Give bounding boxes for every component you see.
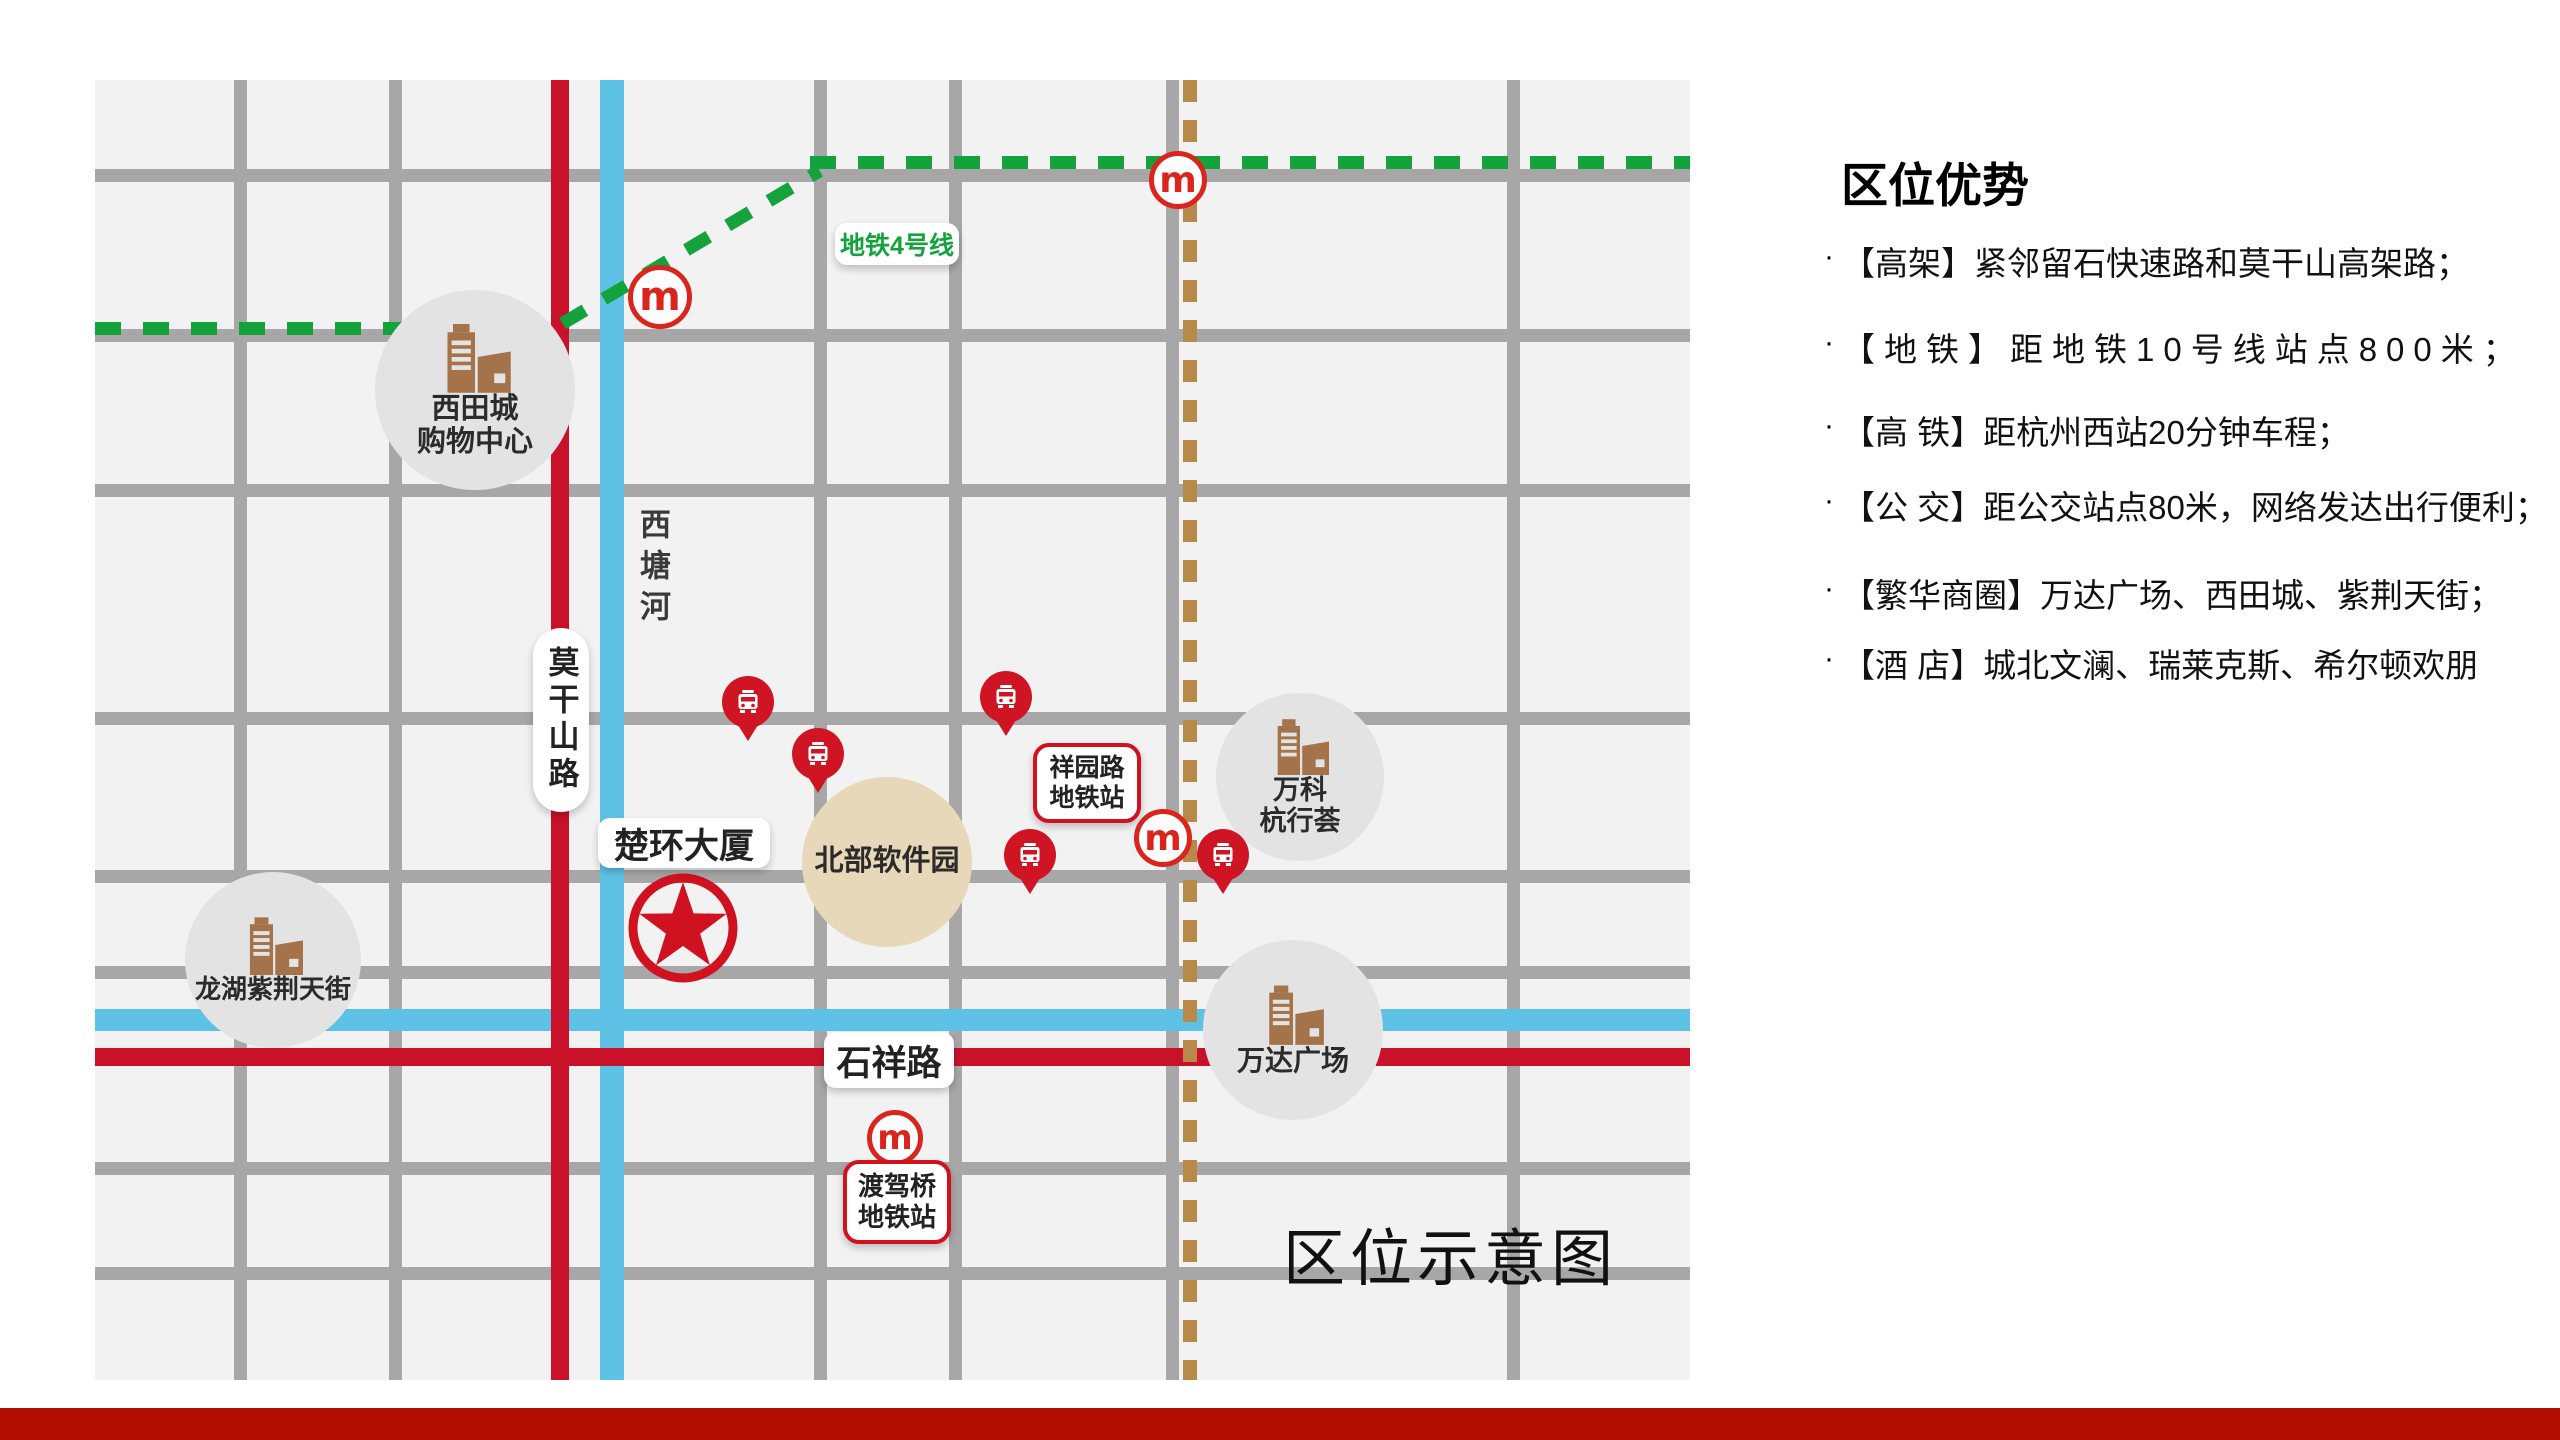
bullet-dot: · [1824, 481, 1834, 522]
river-xitang-vertical [600, 80, 624, 1380]
building-icon [431, 321, 519, 393]
moganshan-road-label: 莫干山路 [533, 628, 589, 812]
road-gray-v6 [1507, 80, 1520, 1380]
advantage-item-bus: · 【公 交】距公交站点80米，网络发达出行便利； [1824, 481, 2548, 529]
map-caption: 区位示意图 [1283, 1208, 1618, 1298]
metro-logo-line4-west: m [628, 265, 692, 329]
advantage-item-hotel: · 【酒 店】城北文澜、瑞莱克斯、希尔顿欢朋 [1824, 639, 2478, 687]
building-icon [1255, 983, 1331, 1045]
poi-label: 西田城购物中心 [417, 393, 533, 460]
metro-line4-left-segment [95, 322, 425, 335]
poi-label: 龙湖紫荆天街 [195, 975, 351, 1005]
bus-stop-pin-2 [792, 728, 844, 793]
metro-logo-xiangyuan: m [1134, 809, 1192, 867]
road-gray-h1 [95, 169, 1690, 182]
xiangyuan-station-label: 祥园路 地铁站 [1033, 743, 1141, 823]
bus-icon [722, 676, 774, 728]
metro-line10-dashed [1183, 80, 1197, 1380]
bus-icon [1197, 829, 1249, 881]
advantage-item-metro: · 【地铁】距地铁10号线站点800米； [1824, 323, 2525, 371]
bullet-dot: · [1824, 569, 1834, 610]
road-gray-v5 [1166, 80, 1179, 1380]
metro-logo-dujiaqiao: m [867, 1110, 923, 1166]
bullet-dot: · [1824, 406, 1834, 447]
metro-logo-line4-east: m [1149, 151, 1207, 209]
dujiaqiao-station-label: 渡驾桥 地铁站 [843, 1160, 951, 1244]
poi-wanda-plaza: 万达广场 [1203, 940, 1383, 1120]
bus-stop-pin-1 [722, 676, 774, 741]
shixiang-road-label: 石祥路 [824, 1032, 954, 1088]
bullet-dot: · [1824, 323, 1834, 364]
bus-icon [980, 671, 1032, 723]
project-name-label: 楚环大厦 [598, 818, 770, 868]
panel-title: 区位优势 [1841, 147, 2029, 216]
road-gray-v2 [389, 80, 402, 1380]
advantage-item-highway: · 【高架】紧邻留石快速路和莫干山高架路； [1824, 237, 2469, 285]
bus-stop-pin-3 [980, 671, 1032, 736]
poi-label: 万科杭行荟 [1260, 775, 1341, 837]
road-gray-h4 [95, 712, 1690, 725]
building-icon [236, 915, 310, 975]
poi-software-park: 北部软件园 [802, 777, 972, 947]
metro-line4-top-segment [810, 156, 1690, 169]
poi-label: 北部软件园 [814, 845, 959, 878]
xitang-river-label: 西塘河 [630, 508, 675, 631]
road-gray-h3 [95, 484, 1690, 497]
bottom-accent-bar [0, 1408, 2560, 1440]
advantage-item-rail: · 【高 铁】距杭州西站20分钟车程； [1824, 406, 2350, 454]
metro-line4-label: 地铁4号线 [835, 223, 959, 265]
bus-icon [1004, 829, 1056, 881]
bus-icon [792, 728, 844, 780]
bullet-dot: · [1824, 639, 1834, 680]
bullet-dot: · [1824, 237, 1834, 278]
building-icon [1264, 717, 1336, 775]
star-icon [625, 870, 741, 986]
bus-stop-pin-5 [1197, 829, 1249, 894]
project-star-marker [625, 870, 741, 991]
poi-label: 万达广场 [1237, 1045, 1349, 1077]
poi-longfor-zijing: 龙湖紫荆天街 [185, 872, 361, 1048]
location-map: 西田城购物中心 龙湖紫荆天街 万科杭行荟 [95, 80, 1690, 1380]
advantage-item-business: · 【繁华商圈】万达广场、西田城、紫荆天街； [1824, 569, 2502, 617]
road-gray-v1 [234, 80, 247, 1380]
bus-stop-pin-4 [1004, 829, 1056, 894]
poi-xitiancheng-mall: 西田城购物中心 [375, 290, 575, 490]
